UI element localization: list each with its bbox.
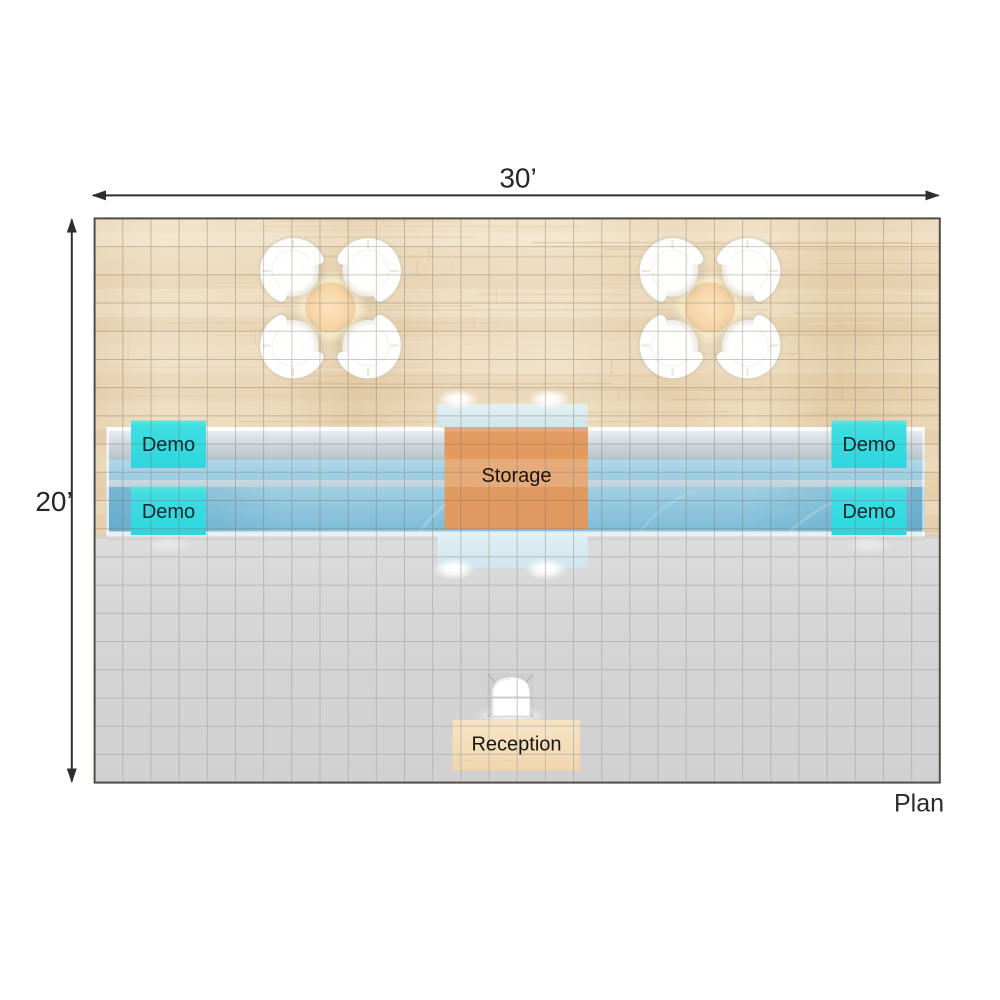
svg-text:30’: 30’ [499, 163, 536, 194]
svg-text:Demo: Demo [142, 501, 195, 523]
svg-text:Storage: Storage [481, 465, 551, 487]
svg-text:Demo: Demo [142, 434, 195, 456]
svg-text:Plan: Plan [894, 790, 944, 818]
svg-text:Reception: Reception [471, 734, 561, 756]
svg-text:20’: 20’ [35, 486, 72, 517]
svg-text:Demo: Demo [842, 434, 895, 456]
svg-text:Demo: Demo [842, 501, 895, 523]
